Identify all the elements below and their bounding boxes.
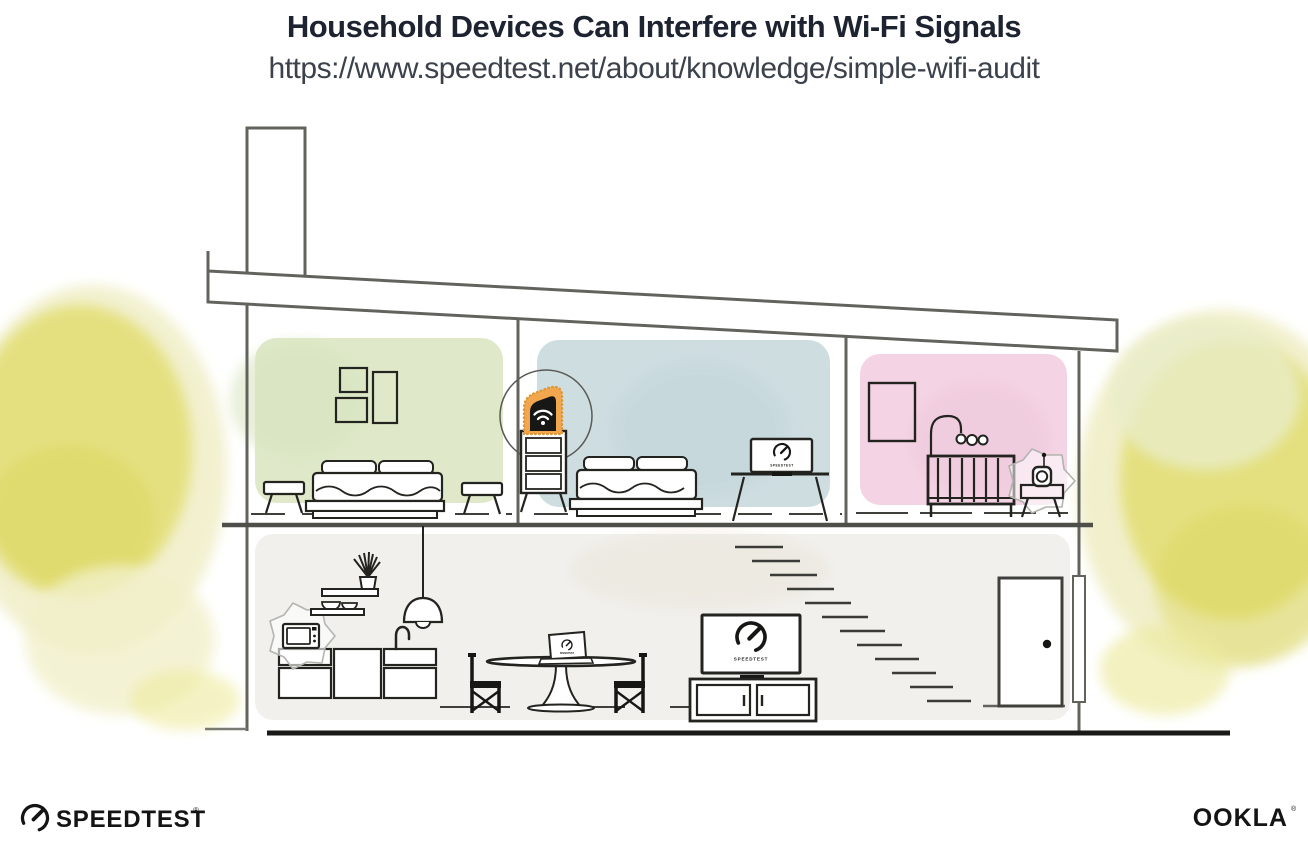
microwave-icon — [283, 624, 319, 648]
chimney — [247, 128, 305, 282]
speedtest-trademark: ® — [193, 806, 199, 815]
ookla-logo-text: OOKLA — [1193, 804, 1288, 832]
ookla-logo: OOKLA ® — [1193, 804, 1297, 832]
foliage-left — [0, 285, 240, 730]
desktop-monitor: SPEEDTEST — [751, 439, 812, 476]
ookla-trademark: ® — [1291, 805, 1297, 813]
table-base — [528, 705, 594, 712]
monitor-screen-label: SPEEDTEST — [770, 464, 793, 468]
infographic-canvas: Household Devices Can Interfere with Wi-… — [0, 0, 1308, 861]
laptop-screen-label: SPEEDTEST — [560, 652, 575, 655]
door-knob — [1043, 640, 1051, 648]
speedtest-gauge-icon — [23, 806, 48, 830]
house-cross-section-illustration: SPEEDTEST — [0, 0, 1308, 861]
bed — [306, 461, 444, 518]
tv-screen-label: SPEEDTEST — [734, 657, 769, 662]
plant-pot — [360, 577, 376, 589]
speedtest-logo: SPEEDTEST ® — [23, 806, 206, 833]
tv-and-console: SPEEDTEST — [690, 615, 816, 721]
downspout — [1073, 576, 1085, 702]
speedtest-logo-text: SPEEDTEST — [56, 806, 206, 833]
foliage-right — [1077, 310, 1308, 715]
